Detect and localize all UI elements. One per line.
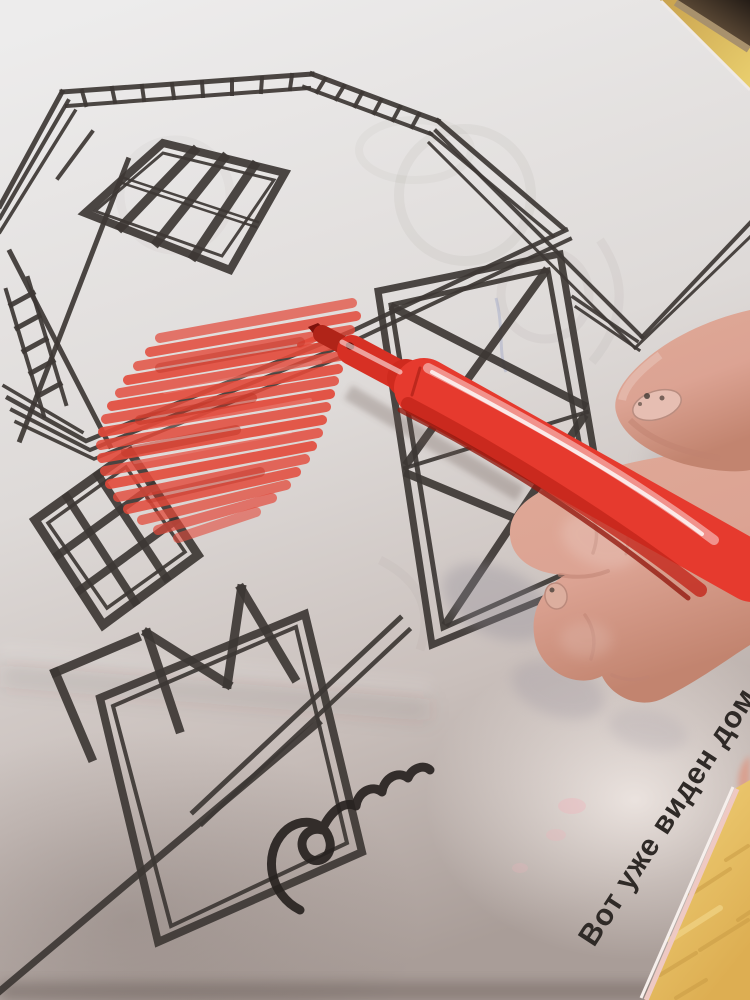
nail-stain-1 (644, 393, 650, 399)
knuckle-highlight-2 (560, 622, 612, 658)
photo-coloring-scene: Вот уже виден дом (0, 0, 750, 1000)
nail-stain-2 (660, 396, 665, 401)
nail-stain-3 (638, 402, 642, 406)
nail-marker-stain (550, 588, 555, 593)
paper-bottom-shadow (0, 982, 750, 1000)
